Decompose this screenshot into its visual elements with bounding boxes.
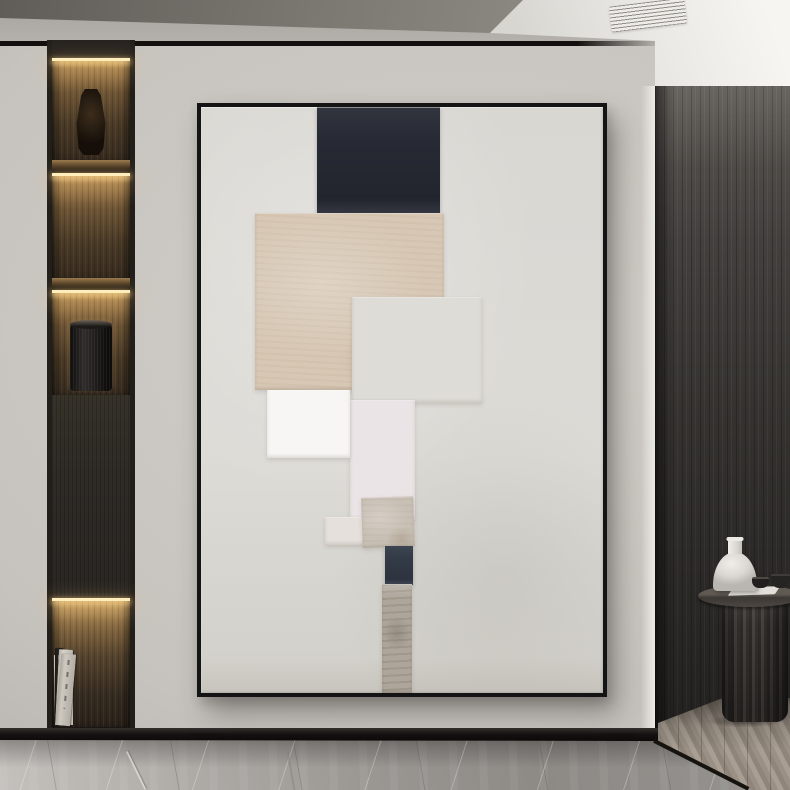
small-bowl — [771, 574, 790, 588]
painting-block-stone-strip — [382, 584, 412, 693]
painting-block-white-square — [267, 390, 350, 458]
shelf-niche-1 — [52, 58, 130, 160]
painting-block-navy-small — [385, 546, 413, 585]
framed-abstract-painting — [197, 103, 607, 697]
painting-block-gray-square — [352, 297, 482, 403]
interior-scene — [0, 0, 790, 790]
shelf-board — [52, 278, 130, 290]
baseboard — [0, 728, 658, 742]
painting-canvas — [201, 107, 603, 693]
cylinder-speaker — [70, 323, 112, 391]
painting-block-tan-square — [361, 496, 415, 548]
shelf-niche-2 — [52, 173, 130, 278]
painting-block-navy-top — [317, 107, 440, 215]
dark-glass-vase — [72, 89, 110, 155]
display-shelf-unit — [47, 40, 135, 740]
shelf-top-rail — [52, 40, 130, 58]
shelf-closed-cabinet — [52, 395, 130, 598]
wall-corner-highlight — [641, 86, 656, 728]
shelf-niche-3 — [52, 290, 130, 395]
side-table-fluted-base — [722, 602, 788, 722]
small-bowl — [752, 577, 769, 588]
book-row — [55, 645, 126, 725]
shelf-niche-4 — [52, 598, 130, 727]
shelf-board — [52, 160, 130, 173]
